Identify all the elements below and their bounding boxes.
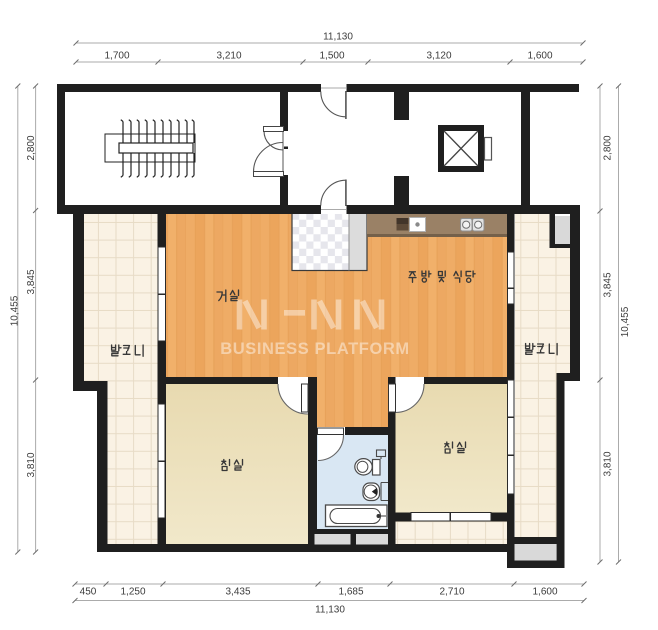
svg-text:10,455: 10,455 — [10, 295, 21, 326]
svg-text:3,845: 3,845 — [603, 272, 614, 297]
svg-text:3,120: 3,120 — [426, 51, 451, 62]
svg-text:1,685: 1,685 — [338, 587, 363, 598]
svg-text:3,210: 3,210 — [216, 51, 241, 62]
svg-text:3,810: 3,810 — [26, 452, 37, 477]
svg-text:1,600: 1,600 — [532, 587, 557, 598]
svg-text:11,130: 11,130 — [323, 32, 353, 43]
svg-text:2,800: 2,800 — [26, 135, 37, 160]
svg-text:2,800: 2,800 — [603, 135, 614, 160]
svg-text:1,700: 1,700 — [104, 51, 129, 62]
svg-text:2,710: 2,710 — [439, 587, 464, 598]
svg-text:11,130: 11,130 — [315, 605, 345, 616]
svg-text:BUSINESS PLATFORM: BUSINESS PLATFORM — [220, 340, 410, 358]
svg-text:10,455: 10,455 — [620, 306, 631, 337]
svg-text:1,250: 1,250 — [120, 587, 145, 598]
svg-text:3,845: 3,845 — [26, 269, 37, 294]
svg-text:450: 450 — [80, 587, 97, 598]
svg-text:3,435: 3,435 — [225, 587, 250, 598]
svg-text:1,500: 1,500 — [319, 51, 344, 62]
svg-text:1,600: 1,600 — [527, 51, 552, 62]
svg-text:3,810: 3,810 — [603, 451, 614, 476]
